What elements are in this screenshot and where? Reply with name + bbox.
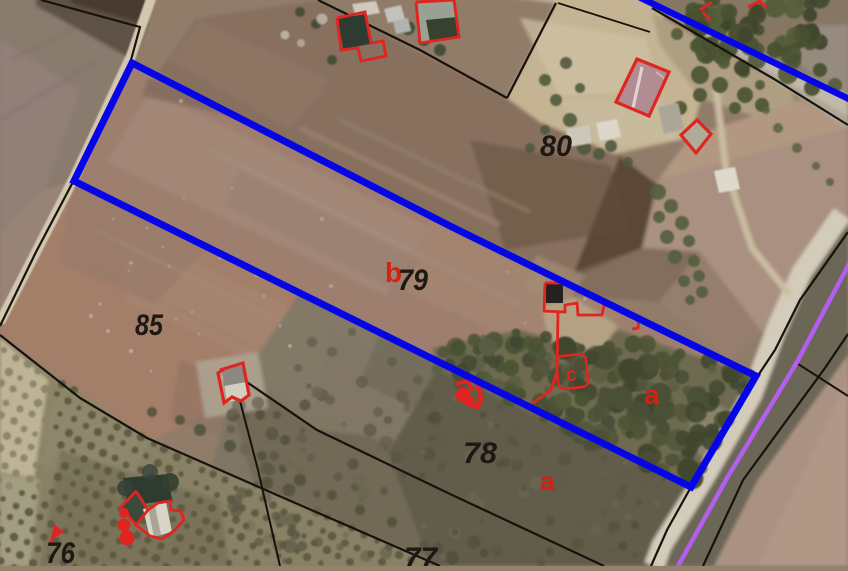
svg-text:77: 77 (404, 542, 438, 566)
svg-text:c: c (566, 365, 577, 386)
svg-text:76: 76 (46, 537, 75, 566)
svg-text:80: 80 (540, 130, 572, 163)
svg-text:85: 85 (135, 309, 164, 342)
svg-text:a: a (644, 379, 660, 410)
svg-text:78: 78 (463, 437, 497, 470)
svg-text:a: a (540, 466, 555, 496)
svg-text:79: 79 (398, 264, 428, 297)
